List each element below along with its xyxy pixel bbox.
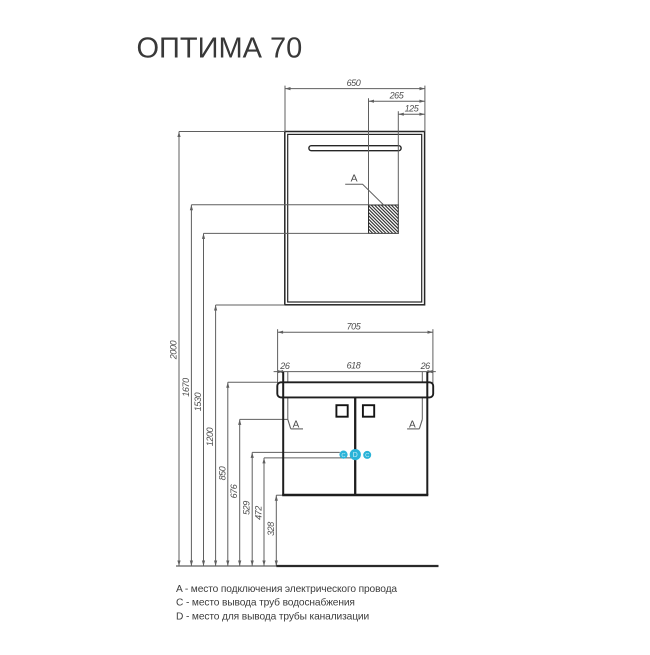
svg-text:529: 529 (242, 501, 252, 515)
svg-text:A - место подключения электрич: A - место подключения электрического про… (176, 584, 397, 595)
svg-text:1670: 1670 (181, 378, 191, 397)
svg-text:650: 650 (347, 78, 361, 88)
svg-text:A: A (409, 420, 416, 431)
svg-text:705: 705 (347, 321, 362, 331)
svg-text:125: 125 (405, 103, 420, 113)
svg-text:1200: 1200 (205, 427, 215, 446)
svg-text:472: 472 (254, 506, 264, 520)
svg-text:C: C (341, 453, 346, 459)
svg-text:850: 850 (217, 466, 227, 480)
svg-text:D - место для вывода трубы кан: D - место для вывода трубы канализации (176, 611, 369, 623)
svg-text:A: A (293, 420, 300, 431)
svg-text:C: C (365, 453, 370, 459)
svg-text:328: 328 (266, 522, 276, 536)
svg-text:A: A (351, 173, 358, 184)
svg-text:ОПТИМА 70: ОПТИМА 70 (137, 33, 303, 65)
svg-text:26: 26 (279, 361, 290, 371)
svg-text:265: 265 (389, 90, 405, 100)
svg-text:618: 618 (347, 361, 361, 371)
svg-text:2000: 2000 (169, 340, 179, 360)
svg-text:D: D (353, 452, 358, 459)
svg-text:1530: 1530 (193, 392, 203, 411)
svg-text:676: 676 (229, 484, 239, 498)
svg-text:C - место вывода труб водоснаб: C - место вывода труб водоснабжения (176, 597, 355, 609)
svg-text:26: 26 (420, 361, 431, 371)
